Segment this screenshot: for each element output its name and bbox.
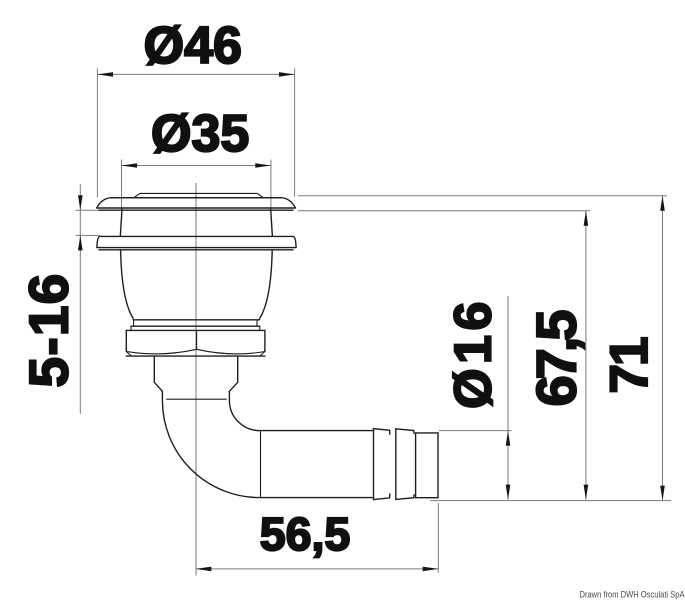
svg-text:Drawn from DWH Osculati SpA: Drawn from DWH Osculati SpA bbox=[580, 590, 685, 600]
svg-text:56,5: 56,5 bbox=[260, 508, 351, 560]
svg-text:71: 71 bbox=[600, 338, 659, 393]
svg-text:Ø16: Ø16 bbox=[445, 297, 503, 409]
svg-text:67,5: 67,5 bbox=[525, 311, 588, 407]
svg-text:5-16: 5-16 bbox=[18, 273, 80, 388]
svg-text:Ø46: Ø46 bbox=[144, 17, 242, 75]
svg-text:Ø35: Ø35 bbox=[151, 105, 249, 163]
